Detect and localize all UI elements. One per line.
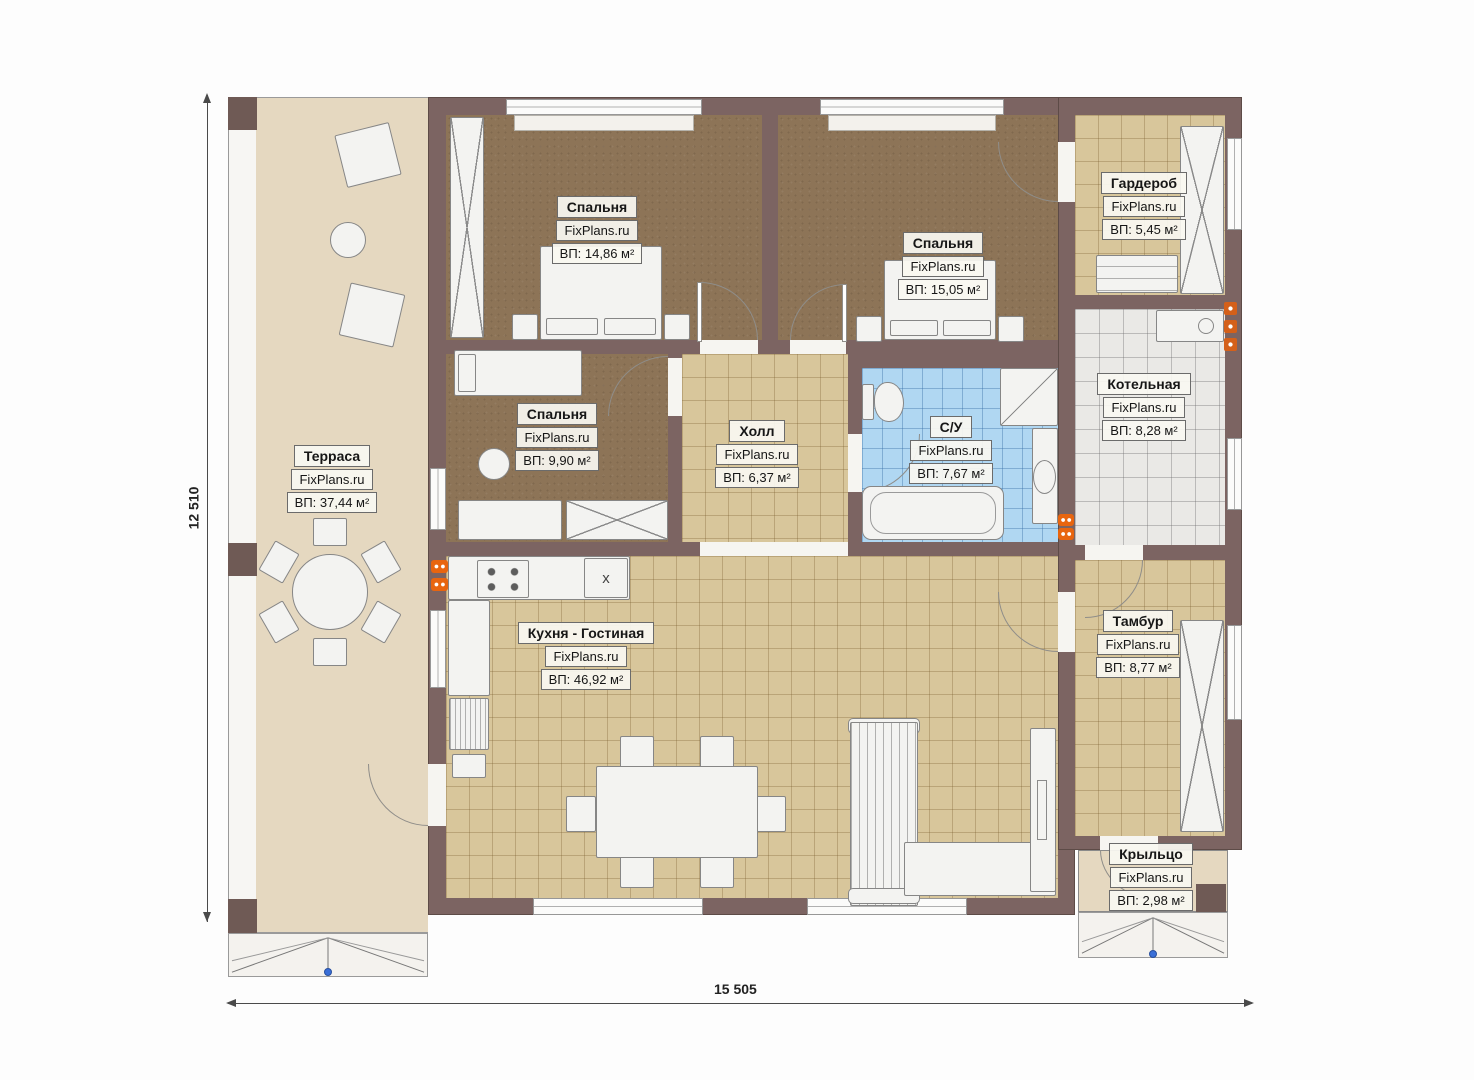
room-label-bedroom3: Спальня FixPlans.ru ВП: 9,90 м²: [498, 403, 616, 471]
brand-label: FixPlans.ru: [1103, 196, 1184, 217]
floor-plan: х Терраса FixPlans.ru ВП: 37,44 м² Спаль…: [0, 0, 1474, 1080]
dimension-line-vertical: [207, 95, 208, 922]
chair-symbol: [313, 638, 347, 666]
kitchen-sink-mark: х: [602, 570, 610, 587]
entrance-marker: [1149, 950, 1157, 958]
room-area: ВП: 6,37 м²: [715, 467, 798, 488]
radiator-icon: [431, 578, 448, 591]
room-name: Спальня: [557, 196, 637, 218]
room-name: Спальня: [903, 232, 983, 254]
brand-label: FixPlans.ru: [1110, 867, 1191, 888]
room-name: С/У: [930, 416, 973, 438]
door-opening: [668, 358, 682, 416]
room-label-wardrobe: Гардероб FixPlans.ru ВП: 5,45 м²: [1088, 172, 1200, 240]
brand-label: FixPlans.ru: [291, 469, 372, 490]
dining-table-symbol: [596, 766, 758, 858]
brand-label: FixPlans.ru: [716, 444, 797, 465]
bed-pillow: [890, 320, 938, 336]
window: [506, 99, 702, 115]
room-name: Холл: [729, 420, 784, 442]
shower-symbol: [1000, 368, 1058, 426]
dresser-symbol: [1096, 255, 1178, 293]
sink-symbol: [1033, 460, 1056, 494]
room-label-porch: Крыльцо FixPlans.ru ВП: 2,98 м²: [1094, 843, 1208, 911]
passage-opening: [700, 542, 848, 556]
door-opening: [848, 434, 862, 492]
window-sill: [828, 115, 996, 131]
door-opening: [1058, 592, 1075, 652]
nightstand-symbol: [856, 316, 882, 342]
brand-label: FixPlans.ru: [516, 427, 597, 448]
radiator-icon: [1058, 528, 1074, 540]
round-table-symbol: [292, 554, 368, 630]
window: [430, 468, 446, 530]
door-opening: [790, 340, 846, 354]
room-area: ВП: 2,98 м²: [1109, 890, 1192, 911]
radiator-icon: [1058, 514, 1074, 526]
bathtub-inner: [870, 492, 996, 534]
tv-symbol: [1037, 780, 1047, 840]
door-opening: [428, 764, 446, 826]
terrace-post: [228, 543, 257, 576]
room-label-bedroom1: Спальня FixPlans.ru ВП: 14,86 м²: [536, 196, 658, 264]
room-label-bedroom2: Спальня FixPlans.ru ВП: 15,05 м²: [882, 232, 1004, 300]
chair-symbol: [700, 736, 734, 768]
door-leaf: [842, 284, 847, 342]
kitchen-appliance: [452, 754, 486, 778]
nightstand-symbol: [998, 316, 1024, 342]
dimension-width-label: 15 505: [714, 981, 757, 997]
bed-pillow: [604, 318, 656, 335]
side-table-symbol: [330, 222, 366, 258]
dimension-height-label: 12 510: [185, 487, 201, 530]
dimension-line-horizontal: [228, 1003, 1252, 1004]
window: [1227, 138, 1242, 230]
chair-symbol: [566, 796, 596, 832]
room-name: Тамбур: [1103, 610, 1174, 632]
room-label-tambour: Тамбур FixPlans.ru ВП: 8,77 м²: [1082, 610, 1194, 678]
stove-symbol: [477, 560, 529, 598]
brand-label: FixPlans.ru: [910, 440, 991, 461]
brand-label: FixPlans.ru: [556, 220, 637, 241]
room-label-terrace: Терраса FixPlans.ru ВП: 37,44 м²: [268, 445, 396, 513]
window: [1227, 438, 1242, 510]
room-area: ВП: 14,86 м²: [552, 243, 643, 264]
boiler-sink-symbol: [1198, 318, 1214, 334]
window: [1227, 625, 1242, 720]
room-area: ВП: 5,45 м²: [1102, 219, 1185, 240]
room-area: ВП: 7,67 м²: [909, 463, 992, 484]
room-name: Спальня: [517, 403, 597, 425]
room-area: ВП: 9,90 м²: [515, 450, 598, 471]
room-area: ВП: 8,77 м²: [1096, 657, 1179, 678]
door-opening: [1085, 545, 1143, 560]
chair-symbol: [700, 856, 734, 888]
wardrobe-symbol: [450, 117, 484, 338]
bed-pillow: [546, 318, 598, 335]
bed-pillow: [458, 354, 476, 392]
wardrobe-symbol: [566, 500, 668, 540]
room-label-hall: Холл FixPlans.ru ВП: 6,37 м²: [702, 420, 812, 488]
nightstand-symbol: [664, 314, 690, 340]
room-area: ВП: 8,28 м²: [1102, 420, 1185, 441]
radiator-icon: [1224, 302, 1237, 315]
radiator-icon: [431, 560, 448, 573]
room-area: ВП: 37,44 м²: [287, 492, 378, 513]
entrance-marker: [324, 968, 332, 976]
window: [430, 610, 446, 688]
room-label-kitchen-living: Кухня - Гостиная FixPlans.ru ВП: 46,92 м…: [508, 622, 664, 690]
chair-symbol: [756, 796, 786, 832]
bed-pillow: [943, 320, 991, 336]
room-label-boiler: Котельная FixPlans.ru ВП: 8,28 м²: [1086, 373, 1202, 441]
room-name: Кухня - Гостиная: [518, 622, 655, 644]
room-name: Гардероб: [1101, 172, 1187, 194]
toilet-tank: [862, 384, 874, 420]
nightstand-symbol: [512, 314, 538, 340]
chair-symbol: [620, 856, 654, 888]
room-area: ВП: 46,92 м²: [541, 669, 632, 690]
chair-symbol: [620, 736, 654, 768]
brand-label: FixPlans.ru: [1103, 397, 1184, 418]
door-opening: [700, 340, 758, 354]
brand-label: FixPlans.ru: [545, 646, 626, 667]
fridge-symbol: [449, 698, 489, 750]
window: [820, 99, 1004, 115]
brand-label: FixPlans.ru: [1097, 634, 1178, 655]
room-name: Крыльцо: [1109, 843, 1193, 865]
room-label-bathroom: С/У FixPlans.ru ВП: 7,67 м²: [896, 416, 1006, 484]
kitchen-counter: [448, 600, 490, 696]
radiator-icon: [1224, 320, 1237, 333]
dimension-arrow-icon: [203, 93, 211, 103]
room-area: ВП: 15,05 м²: [898, 279, 989, 300]
kitchen-sink-symbol: х: [584, 558, 628, 598]
dimension-arrow-icon: [1244, 999, 1254, 1007]
window: [533, 898, 703, 915]
terrace-post: [228, 899, 257, 933]
dimension-arrow-icon: [203, 912, 211, 922]
radiator-icon: [1224, 338, 1237, 351]
brand-label: FixPlans.ru: [902, 256, 983, 277]
dimension-arrow-icon: [226, 999, 236, 1007]
terrace-post: [228, 97, 257, 130]
door-leaf: [697, 282, 702, 342]
chair-symbol: [313, 518, 347, 546]
desk-symbol: [458, 500, 562, 540]
room-name: Терраса: [294, 445, 370, 467]
door-opening: [1058, 142, 1075, 202]
window-sill: [514, 115, 694, 131]
room-name: Котельная: [1097, 373, 1190, 395]
